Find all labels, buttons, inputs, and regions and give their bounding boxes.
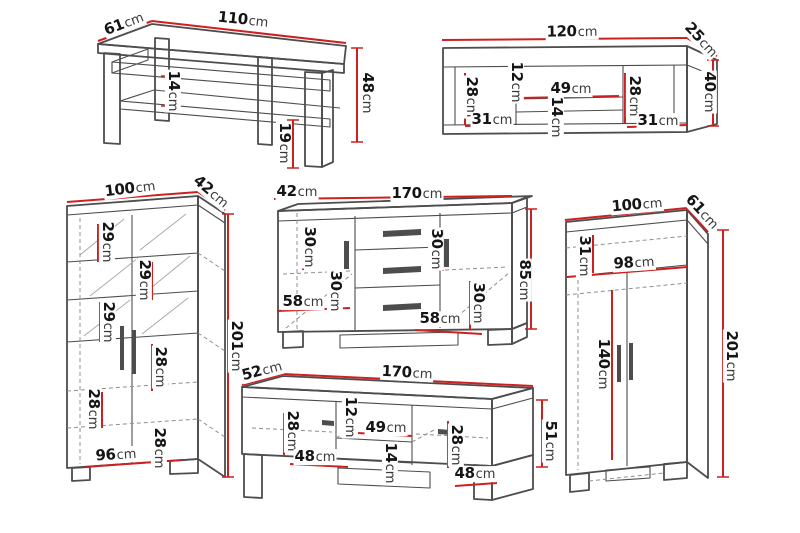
- dim-wall-shelf-right-width: 31cm: [637, 113, 680, 129]
- dim-sideboard-height: 85cm: [516, 259, 532, 302]
- dim-tv-stand-right-door-width: 48cm: [454, 466, 497, 482]
- dim-coffee-table-height: 48cm: [359, 72, 375, 115]
- dim-tv-stand-right-height: 28cm: [448, 424, 464, 467]
- dim-tv-stand-niche-bottom-height: 14cm: [382, 442, 398, 485]
- dim-sideboard-right-top: 30cm: [428, 228, 444, 271]
- dim-display-cabinet-gap6: 28cm: [151, 427, 167, 470]
- display-cabinet-handles: [120, 326, 136, 374]
- dim-tv-stand-left-door-width: 48cm: [294, 449, 337, 465]
- drawer-handle: [383, 266, 421, 274]
- sideboard-drawing: [274, 196, 537, 348]
- dimension-line: [455, 483, 497, 486]
- dim-sideboard-left-bottom: 30cm: [327, 270, 343, 313]
- drawer-handle: [383, 303, 421, 311]
- dim-sideboard-depth: 42cm: [276, 184, 319, 200]
- dim-wall-shelf-left-width: 31cm: [471, 112, 514, 128]
- dim-tv-stand-left-height: 28cm: [284, 410, 300, 453]
- furniture-dimensions-diagram: 61cm 110cm 48cm 14cm 19cm 120cm 25cm 40c…: [0, 0, 800, 533]
- dim-display-cabinet-gap2: 29cm: [136, 259, 152, 302]
- dim-wardrobe-door-height: 140cm: [595, 338, 611, 391]
- coffee-table-drawing: [98, 21, 363, 168]
- dim-wardrobe-height: 201cm: [723, 330, 739, 383]
- dim-tv-stand-niche-width: 49cm: [365, 420, 408, 436]
- dim-display-cabinet-gap1: 29cm: [99, 221, 115, 264]
- dim-wall-shelf-niche-bottom-height: 14cm: [548, 96, 564, 139]
- dim-coffee-table-leg-height: 19cm: [276, 122, 292, 165]
- dim-tv-stand-width: 170cm: [380, 364, 434, 382]
- dim-wall-shelf-width: 120cm: [545, 24, 598, 41]
- dim-wardrobe-inner-width: 98cm: [612, 254, 656, 273]
- dim-display-cabinet-inner-width: 96cm: [94, 446, 138, 465]
- dim-display-cabinet-gap4: 28cm: [152, 346, 168, 389]
- door-handle: [629, 343, 633, 380]
- dim-sideboard-right-bottom: 30cm: [470, 282, 486, 325]
- door-handle: [120, 326, 124, 370]
- coffee-table-outline: [98, 24, 346, 167]
- dim-sideboard-right-door-width: 58cm: [419, 311, 462, 327]
- door-handle: [617, 345, 621, 382]
- door-handle: [344, 241, 349, 269]
- dim-tv-stand-height: 51cm: [542, 420, 558, 463]
- drawer-handle: [383, 229, 421, 237]
- dim-display-cabinet-gap3: 29cm: [100, 301, 116, 344]
- dim-tv-stand-niche-top-height: 12cm: [342, 396, 358, 439]
- dim-wall-shelf-niche-top-height: 12cm: [508, 61, 524, 104]
- dim-wall-shelf-niche-width: 49cm: [550, 81, 593, 97]
- door-handle: [322, 420, 334, 426]
- dim-wardrobe-top-height: 31cm: [576, 235, 592, 278]
- door-handle: [132, 330, 136, 374]
- wardrobe-handles: [617, 343, 633, 382]
- dim-sideboard-left-door-width: 58cm: [282, 294, 325, 310]
- dim-wall-shelf-height: 40cm: [701, 71, 717, 114]
- dim-display-cabinet-gap5: 28cm: [85, 388, 101, 431]
- dim-sideboard-left-top: 30cm: [301, 226, 317, 269]
- dim-sideboard-width: 170cm: [391, 186, 444, 202]
- display-cabinet-outline: [67, 196, 225, 481]
- dim-display-cabinet-height: 201cm: [228, 320, 244, 373]
- dim-coffee-table-shelf-gap: 14cm: [165, 70, 181, 113]
